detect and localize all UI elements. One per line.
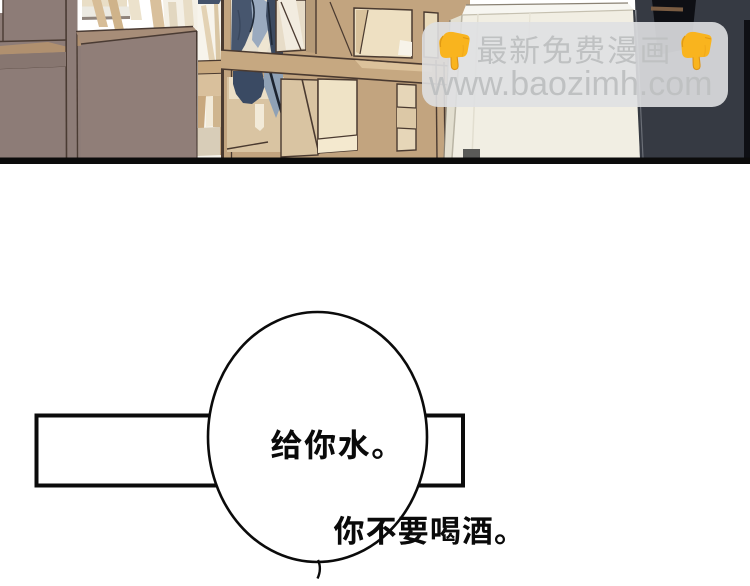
svg-text:www.baozimh.com: www.baozimh.com bbox=[428, 65, 712, 103]
